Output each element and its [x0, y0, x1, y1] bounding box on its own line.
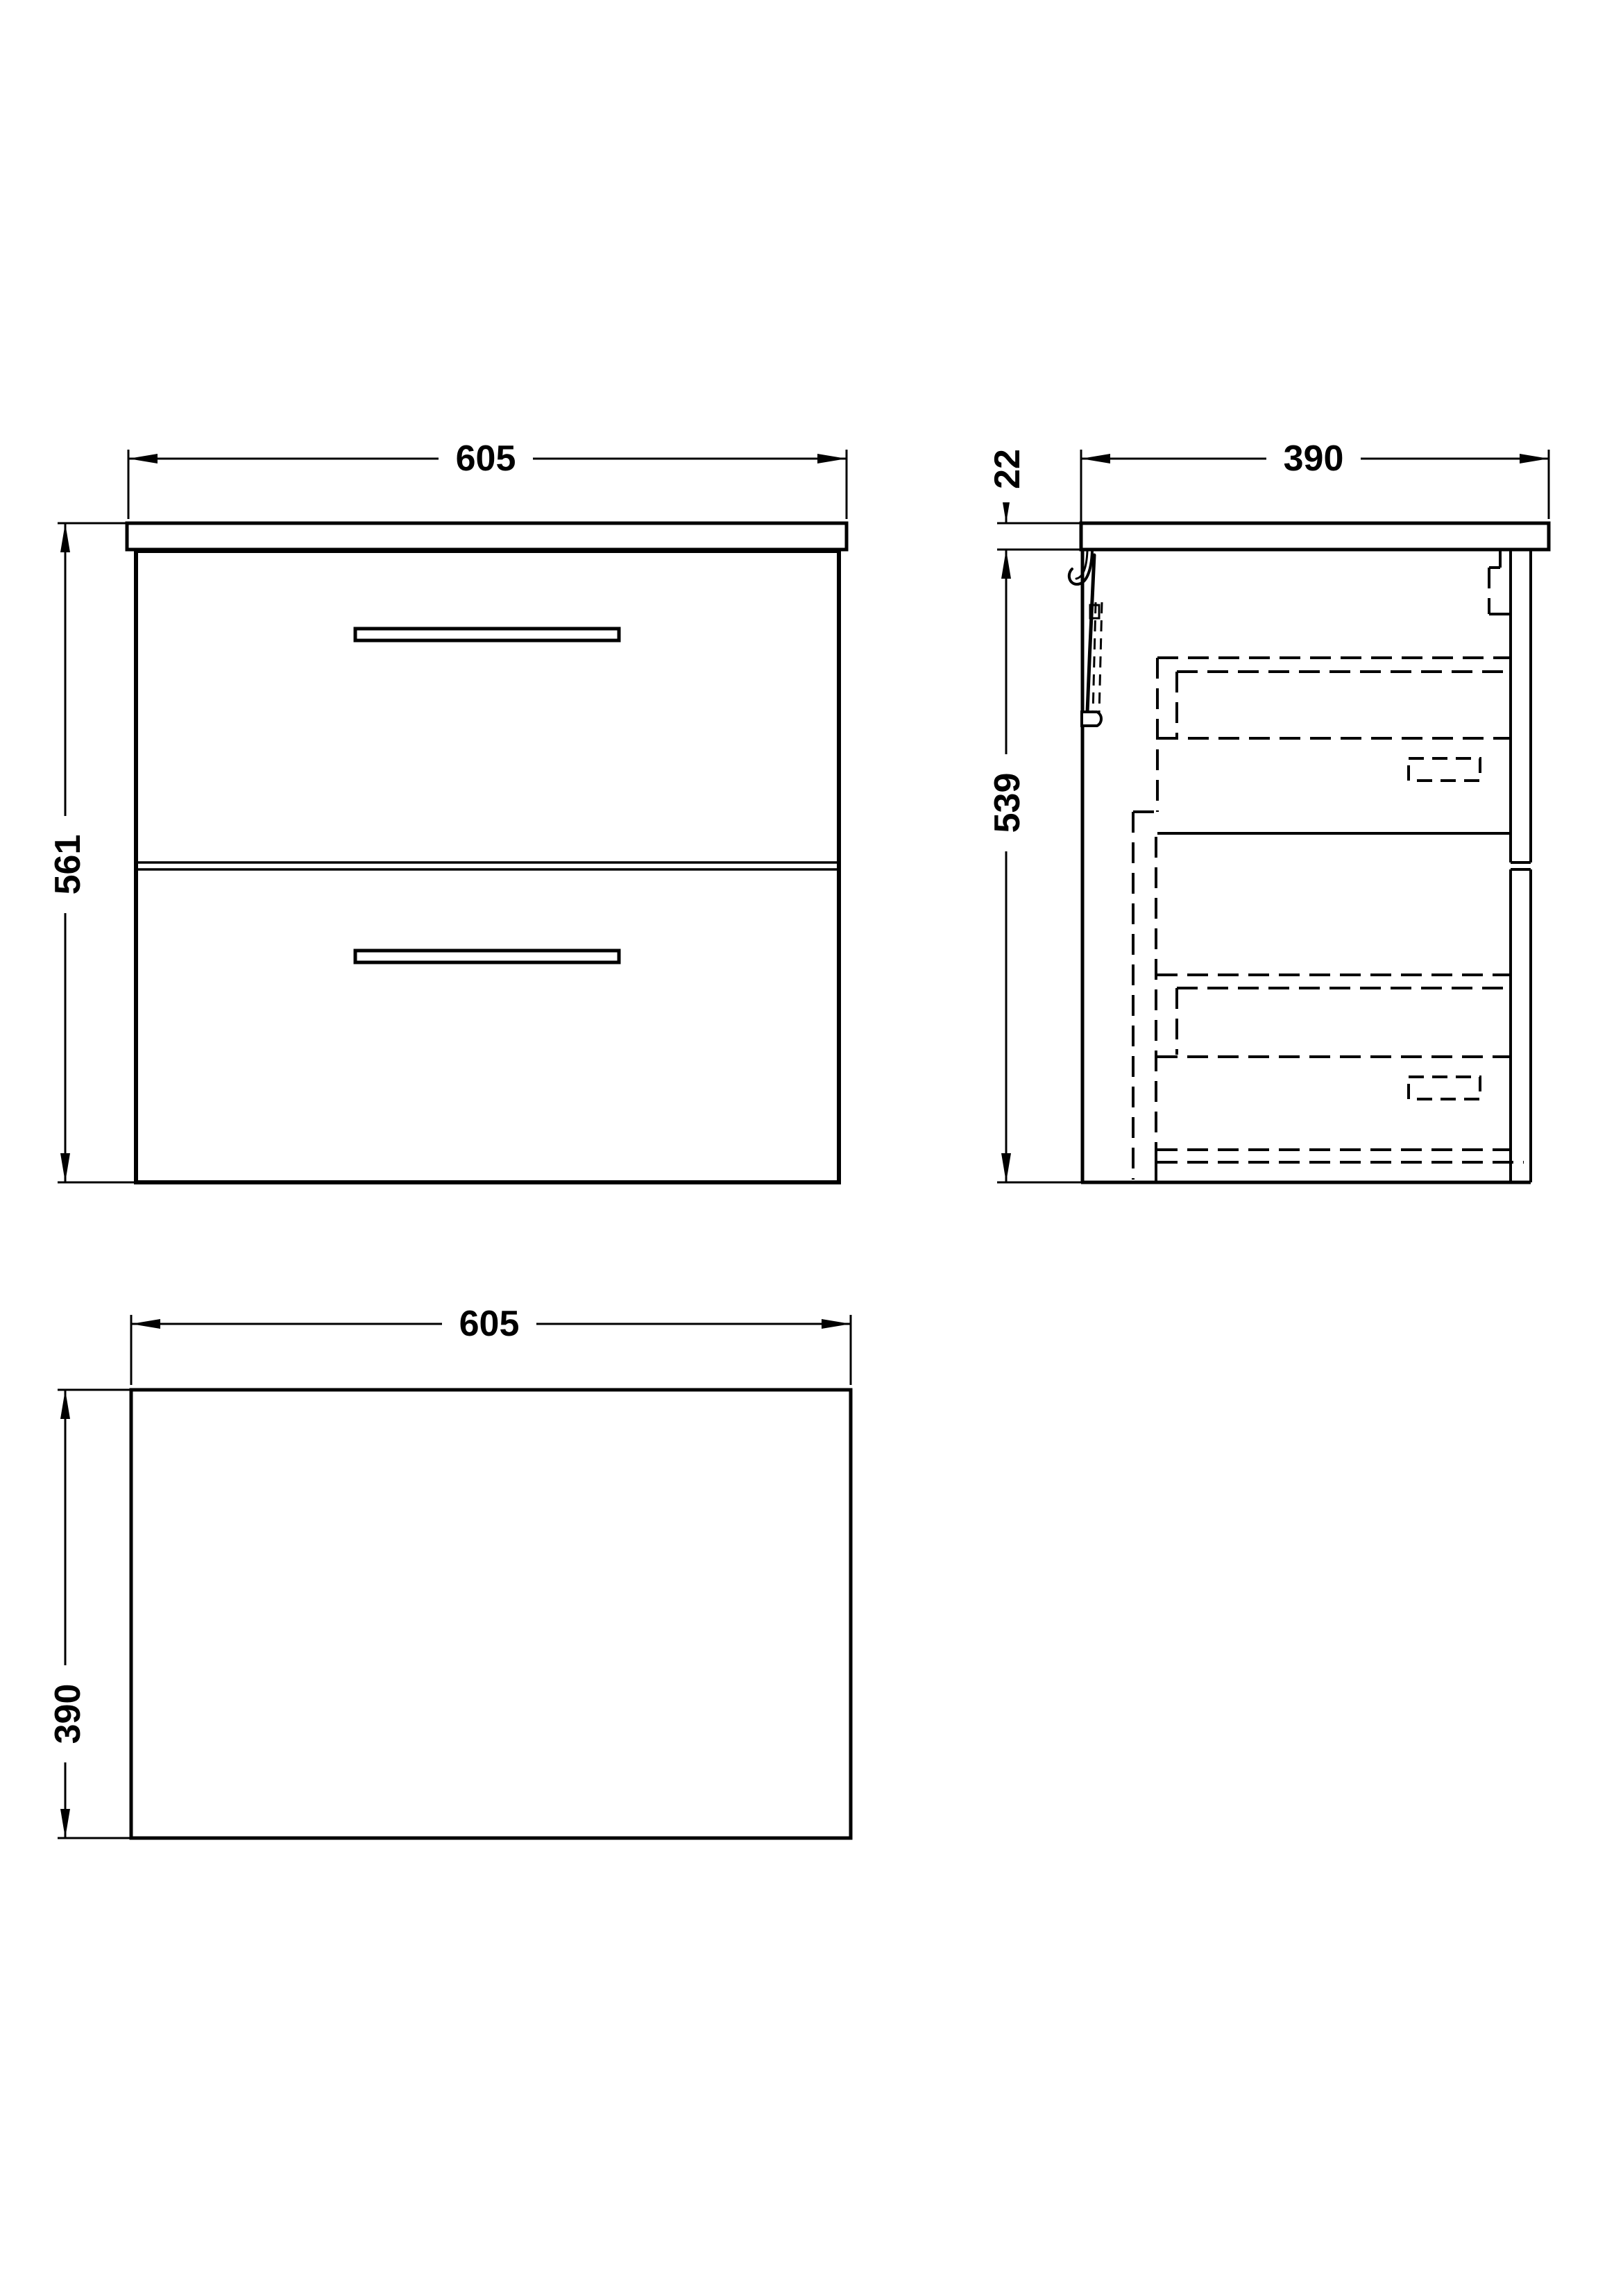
front-width-label: 605 [456, 439, 516, 479]
side-worktop [1081, 523, 1549, 550]
side-depth-arrow-left [1081, 454, 1110, 464]
plan-width-arrow-left [131, 1319, 160, 1329]
bracket-hook-outer [1069, 551, 1092, 584]
bracket-blade [1087, 555, 1094, 712]
plan-width-label: 605 [459, 1304, 520, 1344]
plan-depth-arrow-bottom [60, 1809, 70, 1838]
front-cabinet-outline [136, 551, 839, 1182]
front-height-arrow-bottom [60, 1153, 70, 1182]
side-lower-handle-hidden [1409, 1077, 1480, 1099]
vanity-unit-technical-drawing: 60556139022539605390 [0, 0, 1623, 2296]
front-lower-drawer-handle [355, 951, 619, 962]
side-height-arrow-top [1001, 550, 1011, 579]
front-worktop [127, 523, 847, 550]
front-height-arrow-top [60, 523, 70, 552]
side-depth-label: 390 [1284, 439, 1344, 479]
side-depth-arrow-right [1520, 454, 1549, 464]
side-upper-handle-hidden [1409, 758, 1480, 781]
front-width-arrow-right [817, 454, 847, 464]
plan-depth-arrow-top [60, 1390, 70, 1419]
front-width-arrow-left [128, 454, 158, 464]
technical-drawing-page: 60556139022539605390 [0, 0, 1623, 2296]
bracket-foot [1082, 712, 1101, 726]
plan-depth-label: 390 [48, 1684, 88, 1744]
side-worktop-label: 22 [987, 449, 1028, 489]
front-height-label: 561 [48, 835, 88, 895]
plan-width-arrow-right [822, 1319, 851, 1329]
side-height-arrow-bottom [1001, 1153, 1011, 1182]
plan-outline [131, 1390, 851, 1838]
side-height-label: 539 [987, 773, 1028, 833]
front-upper-drawer-handle [355, 629, 619, 640]
